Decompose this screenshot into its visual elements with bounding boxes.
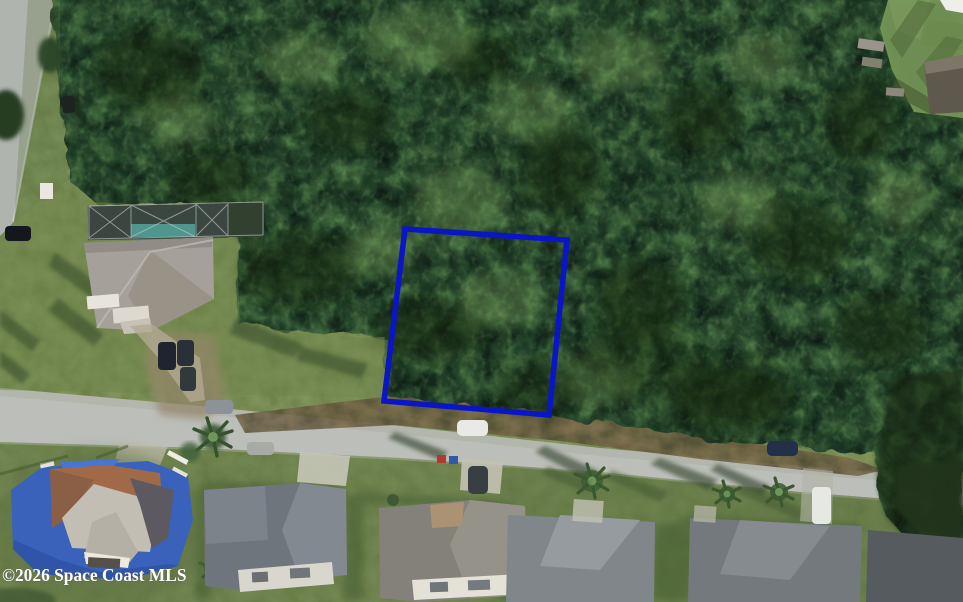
svg-text:©2026 Space Coast MLS: ©2026 Space Coast MLS: [2, 565, 187, 585]
